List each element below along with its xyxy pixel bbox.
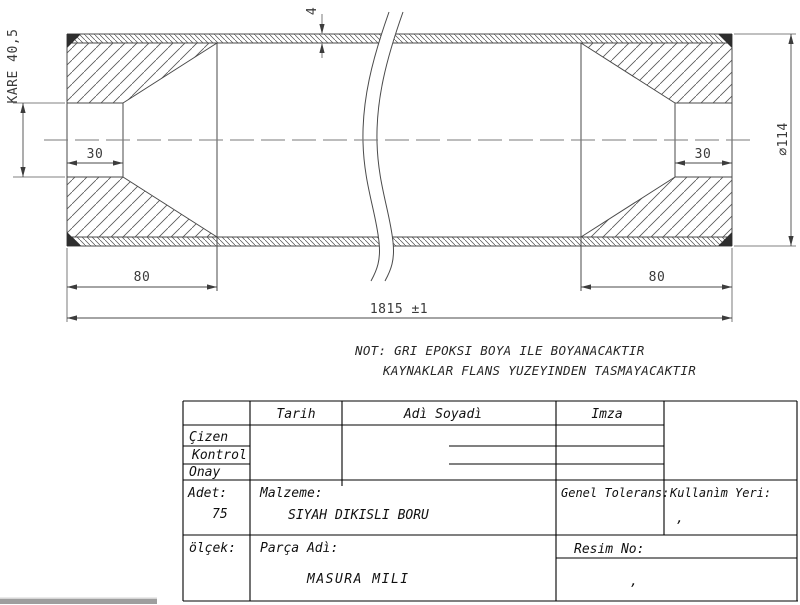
tube-wall-bottom-hatch <box>67 237 732 246</box>
row-label-cizen: Çizen <box>189 430 228 445</box>
note-line-1: NOT: GRI EPOKSI BOYA ILE BOYANACAKTIR <box>354 343 645 358</box>
resim-no-label: Resim No: <box>574 542 644 557</box>
dim-square-end: KARE 40,5 <box>6 29 21 104</box>
dim-wall-thickness: 4 <box>305 7 320 15</box>
parca-adi-label: Parça Adì: <box>260 541 338 556</box>
olcek-label: ölçek: <box>189 541 236 556</box>
tube-wall-top-hatch <box>67 34 732 43</box>
horizontal-scrollbar[interactable] <box>0 598 157 605</box>
dim-left-bore-length: 30 <box>87 147 104 162</box>
parca-adi-value: MASURA MILI <box>306 572 410 587</box>
kullanim-yeri-value: , <box>676 511 684 526</box>
header-adi-soyadi: Adì Soyadì <box>403 407 482 422</box>
dim-outer-diameter: ⌀114 <box>776 122 791 155</box>
note-line-2: KAYNAKLAR FLANS YUZEYINDEN TASMAYACAKTIR <box>382 363 696 378</box>
title-block-grid <box>183 401 798 601</box>
right-plug-bottom-hatch <box>581 177 732 237</box>
header-imza: Imza <box>591 407 622 422</box>
part-cross-section <box>67 34 732 291</box>
resim-no-value: , <box>630 574 638 589</box>
dim-left-plug-length: 80 <box>134 270 151 285</box>
dim-overall-length: 1815 ±1 <box>370 302 428 317</box>
header-tarih: Tarih <box>276 407 315 422</box>
dim-right-plug-length: 80 <box>649 270 666 285</box>
adet-label: Adet: <box>187 486 227 501</box>
title-block: Tarih Adì Soyadì Imza Çizen Kontrol Onay… <box>183 401 798 601</box>
scrollbar-thumb[interactable] <box>0 599 157 604</box>
technical-drawing: KARE 40,5 4 30 30 80 80 1815 ±1 ⌀114 NOT… <box>0 0 800 605</box>
malzeme-value: SIYAH DIKISLI BORU <box>288 508 429 523</box>
left-plug-top-hatch <box>67 43 217 103</box>
dim-right-bore-length: 30 <box>695 147 712 162</box>
right-plug-top-hatch <box>581 43 732 103</box>
malzeme-label: Malzeme: <box>259 486 323 501</box>
left-plug-bottom-hatch <box>67 177 217 237</box>
genel-tolerans-label: Genel Tolerans: <box>561 486 669 500</box>
row-label-onay: Onay <box>189 465 220 480</box>
kullanim-yeri-label: Kullanìm Yeri: <box>669 486 771 500</box>
drawing-notes: NOT: GRI EPOKSI BOYA ILE BOYANACAKTIR KA… <box>354 343 696 378</box>
cad-drawing-screen: KARE 40,5 4 30 30 80 80 1815 ±1 ⌀114 NOT… <box>0 0 800 605</box>
adet-value: 75 <box>212 507 228 522</box>
row-label-kontrol: Kontrol <box>191 448 247 463</box>
scrollbar-highlight <box>0 598 157 600</box>
